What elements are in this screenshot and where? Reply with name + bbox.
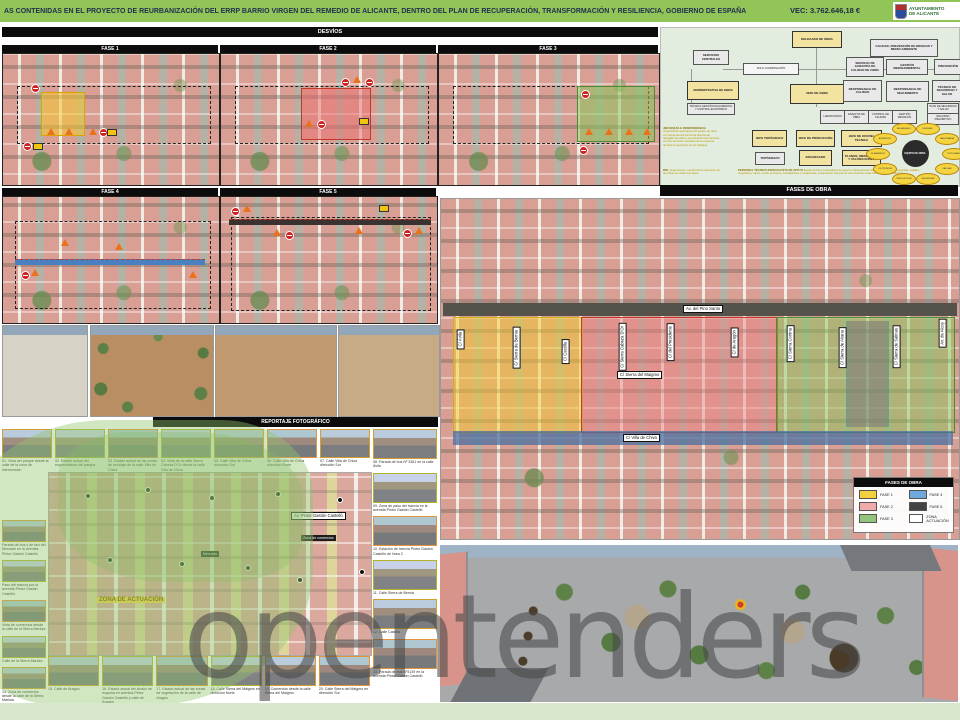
photo-thumbnail: 03. Estado actual de las zonas de recicl… <box>108 429 158 472</box>
org-resp-seguimiento: RESPONSABLE DE SEGUIMIENTO <box>886 81 929 102</box>
no-entry-icon <box>317 120 326 129</box>
fase5-route <box>229 219 431 225</box>
legend-title: FASES DE OBRA <box>854 478 953 487</box>
photo-bottom-row: 15. Calle de Aragón 16. Estado actual de… <box>48 656 370 704</box>
photo-image <box>156 656 207 686</box>
no-entry-icon <box>341 78 350 87</box>
photo-image <box>2 600 46 622</box>
warning-icon <box>31 269 39 276</box>
warning-icon <box>115 243 123 250</box>
warning-icon <box>605 128 613 135</box>
fase4-swatch <box>909 490 927 499</box>
camera-marker-icon <box>275 491 281 497</box>
org-circle-item: INSTALAC. <box>916 123 940 135</box>
photo-image <box>373 599 437 629</box>
street-label-castilla: C/ Castilla <box>562 339 570 364</box>
street-label-villa-chiva: C/ Villa de Chiva <box>623 434 660 442</box>
org-prevencion: PREVENCIÓN <box>934 59 960 75</box>
plaza-render <box>440 545 958 702</box>
org-solo-coordinacion: SOLO COORDINACIÓN <box>743 63 799 75</box>
org-tecnico-ss: TÉCNICO DE SEGURIDAD Y SALUD <box>932 80 960 102</box>
warning-icon <box>273 229 281 236</box>
fase3-header: FASE 3 <box>438 45 658 53</box>
street-label-sierra-cortina: C/ Sierra Cortina <box>787 325 795 362</box>
no-entry-icon <box>21 271 30 280</box>
photo-thumbnail: 06. Calle Villa de Chiva dirección Norte <box>267 429 317 472</box>
photo-caption: 01. Vista del parque desde la calle de l… <box>2 458 52 472</box>
fase2-swatch <box>859 502 877 511</box>
villa-chiva-road <box>453 431 953 445</box>
fase2-header: FASE 2 <box>220 45 436 53</box>
legend-item-fase1: FASE 1 <box>859 490 904 499</box>
org-support-circle: TOPOGRAFÍACALIDADSEGURIDADPRODUCCIÓNOF. … <box>872 122 958 184</box>
street-strip <box>216 326 336 335</box>
warning-icon <box>415 227 423 234</box>
org-circle-item: ADMINISTR. <box>873 133 897 145</box>
photo-thumbnail: 13. Parada de bus Nº3139 en la avenida P… <box>373 639 437 679</box>
warning-icon <box>355 227 363 234</box>
photo-image <box>48 656 99 686</box>
photo-thumbnail: 08. Parada de bus Nº 3361 en la calle Áv… <box>373 429 437 469</box>
works-sign-icon <box>33 143 43 150</box>
org-administrativa: ADMINISTRATIVA DE OBRA <box>687 81 739 100</box>
photo-thumbnail: 14. Zona de comercios desde la calle de … <box>2 667 46 703</box>
zona-swatch <box>909 514 924 523</box>
warning-icon <box>47 128 55 135</box>
poster-title: AS CONTENIDAS EN EL PROYECTO DE REURBANI… <box>0 8 746 15</box>
photo-image <box>265 656 316 686</box>
org-circle-item: ENCARGADO <box>892 123 916 135</box>
site-plan: Av. Pintor Gastón Castelló Mercado Zona … <box>48 472 372 656</box>
no-entry-icon <box>23 142 32 151</box>
org-circle-center: EQUIPO DE OBRA <box>902 140 929 167</box>
photo-thumbnail: 16. Estado actual del kiosko de esquina … <box>102 656 153 704</box>
org-circle-item: OF. TÉCNICA <box>873 163 897 175</box>
photo-thumbnail: 02. Estado actual del esparcimiento del … <box>55 429 105 472</box>
photo-caption: Vista de comercios desde la calle de la … <box>2 622 46 632</box>
photo-image <box>373 473 437 503</box>
building-right-corner <box>836 545 941 571</box>
fase5-swatch <box>909 502 927 511</box>
alicante-crest-icon <box>895 4 907 19</box>
org-circle-item: CALIDAD <box>935 163 959 175</box>
org-topografo: TOPÓGRAFO <box>755 152 785 165</box>
street-label-sierra-aitana: C/ Sierra de Aitana <box>839 327 847 368</box>
render-plaza-demolition <box>90 325 214 417</box>
fase4-actuation-outline <box>15 221 211 309</box>
render-plaza-existing <box>2 325 88 417</box>
fase2-zone <box>301 88 371 140</box>
street-strip <box>3 326 87 335</box>
camera-marker-icon <box>209 495 215 501</box>
plan-zona-actuacion-label: ZONA DE ACTUACIÓN <box>97 597 165 603</box>
warning-icon <box>89 128 97 135</box>
photo-image <box>319 656 370 686</box>
warning-icon <box>65 128 73 135</box>
photo-thumbnail: 05. Calle Villa de Chiva dirección Sur <box>214 429 264 472</box>
photo-caption: 12. Calle Castilla <box>373 629 437 634</box>
photo-caption: 10. Estación de tranvía Pintor Gastón Ca… <box>373 546 437 556</box>
plan-tag-mercado: Mercado <box>201 551 219 557</box>
org-admin-sub: TÉCNICO GESTIÓN DOCUMENTAL Y CONTROL ECO… <box>687 103 735 115</box>
photo-caption: Parada de bus y de taxi del Mercado en l… <box>2 542 46 556</box>
photo-thumbnail: 18. Calle Sierra del Maigmo en dirección… <box>211 656 262 704</box>
photo-thumbnail: Parada de bus y de taxi del Mercado en l… <box>2 520 46 556</box>
org-delegado-obra: DELEGADO DE OBRA <box>792 31 842 48</box>
photo-image <box>373 516 437 546</box>
plan-avenue-label: Av. Pintor Gastón Castelló <box>291 512 346 520</box>
photo-caption: 09. Zona de paso del tranvía en la aveni… <box>373 503 437 513</box>
photo-thumbnail: 11. Calle Sierra de Bernia <box>373 560 437 595</box>
photo-caption: 15. Calle de Aragón <box>48 686 99 691</box>
org-circle-item: PRODUCCIÓN <box>892 173 916 185</box>
warning-icon <box>625 128 633 135</box>
photo-caption: 13. Parada de bus Nº3139 en la avenida P… <box>373 669 437 679</box>
photo-image <box>373 429 437 459</box>
photo-caption: 04. Vista de la calle Sierra Cabeza D'Or… <box>161 458 211 472</box>
photo-caption: 11. Calle Sierra de Bernia <box>373 590 437 595</box>
photo-thumbnail: Calle de la Sierra Mariola <box>2 636 46 663</box>
photo-thumbnail: 19. Comercios desde la calle Sierra del … <box>265 656 316 704</box>
street-label-pino-santo: Av. del Pino Santo <box>683 305 723 313</box>
fase5-building <box>846 321 889 427</box>
street-label-sierra-maigmo: C/ Sierra del Maigmo <box>617 371 662 379</box>
org-garantia-calidad: SERVICIO DE GARANTÍA DE CALIDAD DE OBRA <box>846 57 884 77</box>
photo-image <box>2 429 52 458</box>
fase1-header: FASE 1 <box>2 45 218 53</box>
street-label-alcoy: Av. de Alcoy <box>939 319 947 348</box>
camera-marker-icon <box>337 497 343 503</box>
street-label-sierra-salinas: C/ Sierra de Salinas <box>893 325 901 368</box>
vec-amount: VEC: 3.762.646,18 € <box>790 6 860 15</box>
org-encargado: ENCARGADO <box>799 150 832 166</box>
reportaje-section-header: REPORTAJE FOTOGRÁFICO <box>153 417 438 427</box>
photo-image <box>2 636 46 658</box>
no-entry-icon <box>581 90 590 99</box>
photo-image <box>161 429 211 458</box>
works-sign-icon <box>107 129 117 136</box>
warning-icon <box>61 239 69 246</box>
fase2-map <box>220 53 438 186</box>
camera-marker-icon <box>245 565 251 571</box>
warning-icon <box>305 120 313 127</box>
no-entry-icon <box>579 146 588 155</box>
works-sign-icon <box>379 205 389 212</box>
photo-image <box>211 656 262 686</box>
fase1-swatch <box>859 490 877 499</box>
photo-caption: 06. Calle Villa de Chiva dirección Norte <box>267 458 317 468</box>
photo-image <box>214 429 264 458</box>
warning-icon <box>353 76 361 83</box>
fase4-route <box>15 259 205 265</box>
photo-thumbnail: 10. Estación de tranvía Pintor Gastón Ca… <box>373 516 437 556</box>
legend-item-fase5: FASE 5 <box>909 502 954 511</box>
photo-caption: 05. Calle Villa de Chiva dirección Sur <box>214 458 264 468</box>
photo-thumbnail: 04. Vista de la calle Sierra Cabeza D'Or… <box>161 429 211 472</box>
photo-caption: 02. Estado actual del esparcimiento del … <box>55 458 105 468</box>
photo-image <box>2 667 46 689</box>
photo-image <box>2 520 46 542</box>
warning-icon <box>643 128 651 135</box>
photo-image <box>102 656 153 686</box>
legend-item-zona: ZONA ACTUACIÓN <box>909 514 954 523</box>
photo-image <box>267 429 317 458</box>
photo-caption: 08. Parada de bus Nº 3361 en la calle Áv… <box>373 459 437 469</box>
camera-marker-icon <box>297 577 303 583</box>
photo-image <box>320 429 370 458</box>
fase2-area <box>581 317 778 433</box>
org-jefe-topografo: JEFE TOPÓGRAFO <box>752 130 787 147</box>
photo-thumbnail: 15. Calle de Aragón <box>48 656 99 704</box>
warning-icon <box>585 128 593 135</box>
no-entry-icon <box>231 207 240 216</box>
org-jefe-produccion: JEFE DE PRODUCCIÓN <box>796 130 835 147</box>
no-entry-icon <box>31 84 40 93</box>
render-plaza-paving <box>338 325 440 417</box>
street-strip <box>339 326 439 335</box>
render-plaza-earthworks <box>215 325 337 417</box>
street-label-aragon: C/ de Aragón <box>731 327 739 357</box>
desvios-section-header: DESVÍOS <box>2 27 658 37</box>
fase1-map <box>2 53 220 186</box>
fase5-header: FASE 5 <box>220 188 436 196</box>
photo-thumbnail: 12. Calle Castilla <box>373 599 437 634</box>
org-laboratorio: LABORATORIO <box>820 110 845 124</box>
photo-top-row: 01. Vista del parque desde la calle de l… <box>2 429 370 472</box>
street-label-presidente: C/ del Presidente <box>667 323 675 361</box>
plan-tag-comercios: Zona de comercios <box>301 535 336 541</box>
photo-thumbnail: 07. Calle Villa de Chiva dirección Sur <box>320 429 370 472</box>
warning-icon <box>189 271 197 278</box>
photo-right-column: 08. Parada de bus Nº 3361 en la calle Áv… <box>373 429 437 678</box>
photo-left-column: Parada de bus y de taxi del Mercado en l… <box>2 520 46 703</box>
org-ensayos: ENSAYOS DE OBRA <box>844 110 869 124</box>
photo-thumbnail: Paso del tranvía por la avenida Pintor G… <box>2 560 46 596</box>
photo-caption: 03. Estado actual de las zonas de recicl… <box>108 458 158 472</box>
street-label-avila: C/ Ávila <box>457 329 465 349</box>
no-entry-icon <box>403 229 412 238</box>
fase5-actuation-outline <box>231 217 431 311</box>
camera-marker-icon <box>359 569 365 575</box>
legend-item-fase2: FASE 2 <box>859 502 904 511</box>
photo-thumbnail: 09. Zona de paso del tranvía en la aveni… <box>373 473 437 513</box>
org-resp-calidad: RESPONSABLE DE CALIDAD <box>843 80 882 102</box>
warning-icon <box>243 205 251 212</box>
org-circle-item: TOPOGRAFÍA <box>942 148 960 160</box>
fase3-swatch <box>859 514 877 523</box>
org-rol-text: ROL Seguimiento y control de la ejecució… <box>663 169 721 176</box>
photo-thumbnail: 20. Calle Sierra del Maigmo en dirección… <box>319 656 370 704</box>
photo-caption: 17. Estado actual de las zonas de vegeta… <box>156 686 207 700</box>
org-servicios-centrales: SERVICIOS CENTRALES <box>693 50 729 65</box>
street-strip <box>91 326 213 335</box>
logo-text: AYUNTAMIENTODE ALICANTE <box>909 6 944 16</box>
watermark-bottom-strip <box>0 703 960 720</box>
street-label-cabeza-dor: C/ Sierra Cabeza D'Or <box>619 323 627 371</box>
org-jefe-obra: JEFE DE OBRA <box>790 84 844 104</box>
org-circle-item: MAQUINARIA <box>935 133 959 145</box>
photo-caption: 18. Calle Sierra del Maigmo en dirección… <box>211 686 262 696</box>
org-gestion-medioambiental: GESTIÓN MEDIOAMBIENTAL <box>886 59 928 75</box>
photo-caption: 19. Comercios desde la calle Sierra del … <box>265 686 316 696</box>
org-circle-item: SEGURIDAD <box>916 173 940 185</box>
photo-caption: 14. Zona de comercios desde la calle de … <box>2 689 46 703</box>
camera-marker-icon <box>179 561 185 567</box>
photo-image <box>55 429 105 458</box>
fase3-map <box>438 53 660 186</box>
works-sign-icon <box>359 118 369 125</box>
legend-item-fase4: FASE 4 <box>909 490 954 499</box>
org-calidad-prl: CALIDAD, PREVENCIÓN DE RIESGOS Y MEDIO A… <box>870 39 938 57</box>
street-label-sierra-bernia: C/ Sierra de Bernia <box>513 327 521 369</box>
photo-image <box>2 560 46 582</box>
fase4-header: FASE 4 <box>2 188 218 196</box>
photo-image <box>373 639 437 669</box>
no-entry-icon <box>285 231 294 240</box>
fases-obra-section-header: FASES DE OBRA <box>660 185 958 196</box>
photo-caption: 07. Calle Villa de Chiva dirección Sur <box>320 458 370 468</box>
photo-image <box>373 560 437 590</box>
camera-marker-icon <box>145 487 151 493</box>
photo-caption: Paso del tranvía por la avenida Pintor G… <box>2 582 46 596</box>
photo-thumbnail: Vista de comercios desde la calle de la … <box>2 600 46 632</box>
photo-thumbnail: 17. Estado actual de las zonas de vegeta… <box>156 656 207 704</box>
fase5-map <box>220 196 438 324</box>
camera-marker-icon <box>85 493 91 499</box>
org-jerarquia-text: JERARQUÍA E INDEPENDENCIA Organización j… <box>663 127 721 147</box>
camera-marker-icon <box>107 557 113 563</box>
fases-legend: FASES DE OBRA FASE 1 FASE 2 FASE 3 FASE … <box>853 477 954 533</box>
no-entry-icon <box>365 78 374 87</box>
photo-caption: 16. Estado actual del kiosko de esquina … <box>102 686 153 704</box>
fase4-map <box>2 196 220 324</box>
photo-image <box>108 429 158 458</box>
photo-caption: 20. Calle Sierra del Maigmo en dirección… <box>319 686 370 696</box>
ayuntamiento-logo: AYUNTAMIENTODE ALICANTE <box>893 2 960 20</box>
building-roof-left <box>440 552 468 687</box>
legend-item-fase3: FASE 3 <box>859 514 904 523</box>
photo-caption: Calle de la Sierra Mariola <box>2 658 46 663</box>
org-circle-item: M. AMBIENTE <box>866 148 890 160</box>
photo-thumbnail: 01. Vista del parque desde la calle de l… <box>2 429 52 472</box>
